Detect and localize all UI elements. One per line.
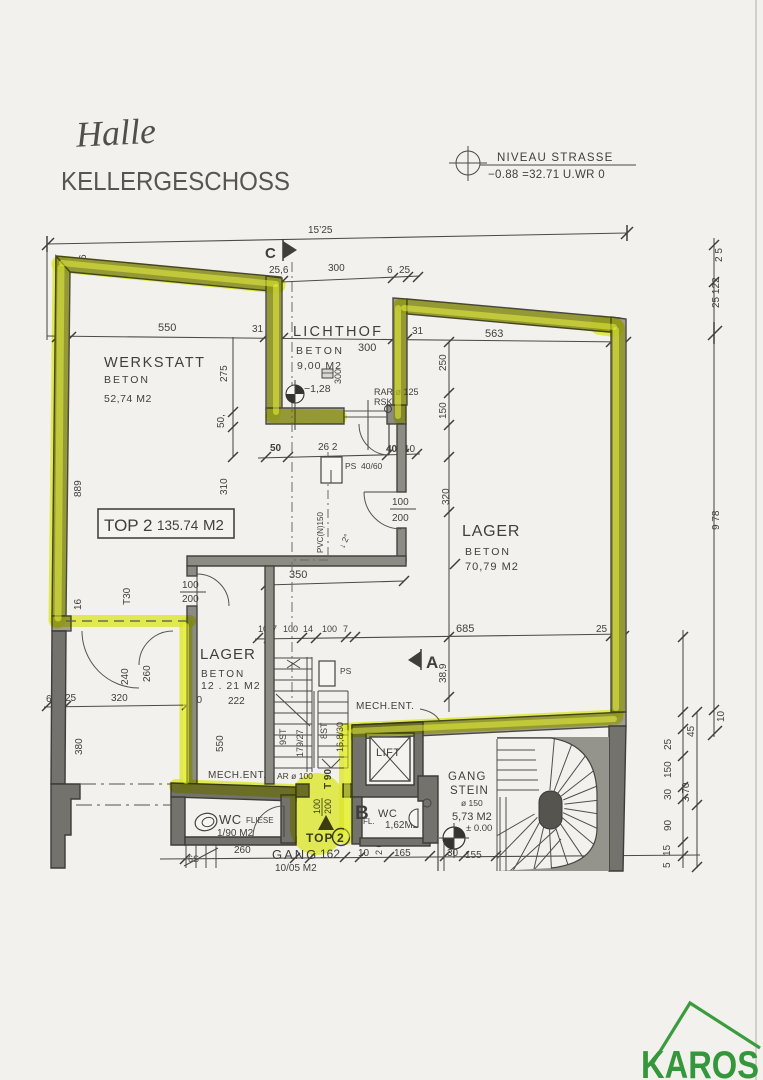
- svg-text:PVC(N)150: PVC(N)150: [316, 512, 325, 553]
- svg-text:52,74 M2: 52,74 M2: [104, 393, 152, 405]
- svg-text:KAROS: KAROS: [641, 1044, 759, 1080]
- svg-text:Halle: Halle: [74, 111, 157, 155]
- svg-text:31: 31: [412, 326, 424, 337]
- svg-text:90: 90: [663, 819, 674, 831]
- svg-text:3 70: 3 70: [681, 782, 692, 802]
- svg-text:275: 275: [219, 365, 230, 382]
- svg-text:25 122: 25 122: [711, 277, 722, 308]
- svg-text:FL.: FL.: [363, 817, 375, 826]
- svg-text:10: 10: [358, 848, 370, 859]
- svg-text:300: 300: [328, 263, 345, 274]
- svg-text:STEIN: STEIN: [450, 785, 489, 797]
- svg-text:LAGER: LAGER: [462, 523, 520, 540]
- svg-text:M2: M2: [203, 517, 224, 534]
- svg-text:12 . 21 M2: 12 . 21 M2: [201, 680, 261, 692]
- svg-text:7: 7: [343, 624, 348, 634]
- svg-text:10: 10: [716, 710, 727, 722]
- svg-text:889: 889: [73, 480, 84, 497]
- svg-text:70,79 M2: 70,79 M2: [465, 561, 519, 573]
- svg-text:15: 15: [662, 844, 673, 856]
- svg-text:550: 550: [215, 735, 226, 752]
- svg-text:± 0.00: ± 0.00: [466, 823, 492, 834]
- svg-text:25: 25: [399, 265, 411, 276]
- svg-text:320: 320: [441, 488, 452, 505]
- svg-text:310: 310: [219, 478, 230, 495]
- svg-text:BETON: BETON: [201, 669, 245, 680]
- svg-text:−1,28: −1,28: [304, 383, 331, 395]
- svg-text:25: 25: [596, 624, 608, 635]
- svg-text:TOP 2: TOP 2: [104, 516, 153, 535]
- svg-text:260: 260: [234, 845, 251, 856]
- svg-text:685: 685: [456, 623, 474, 635]
- svg-text:40: 40: [386, 444, 398, 455]
- svg-text:GANG: GANG: [448, 771, 487, 783]
- svg-text:−0.88 =32.71 U.WR 0: −0.88 =32.71 U.WR 0: [488, 169, 605, 181]
- svg-text:150: 150: [438, 402, 449, 419]
- svg-text:179/27: 179/27: [295, 729, 305, 757]
- svg-text:WERKSTATT: WERKSTATT: [104, 355, 204, 371]
- svg-text:135.74: 135.74: [157, 518, 199, 533]
- svg-text:MECH.ENT.: MECH.ENT.: [356, 701, 414, 712]
- svg-text:380: 380: [74, 738, 85, 755]
- svg-text:9ST: 9ST: [278, 728, 288, 745]
- svg-text:250: 250: [438, 354, 449, 371]
- svg-text:WC: WC: [219, 812, 242, 827]
- svg-text:50,: 50,: [216, 414, 227, 428]
- svg-text:14: 14: [303, 624, 313, 634]
- svg-text:155: 155: [465, 850, 482, 861]
- svg-text:BETON: BETON: [104, 374, 150, 386]
- svg-text:6S: 6S: [188, 854, 199, 864]
- svg-text:30: 30: [663, 788, 674, 800]
- svg-text:15’25: 15’25: [308, 225, 333, 236]
- svg-text:NIVEAU STRASSE: NIVEAU STRASSE: [497, 152, 614, 164]
- svg-text:1/90 M2: 1/90 M2: [217, 828, 254, 839]
- svg-text:LAGER: LAGER: [200, 646, 256, 663]
- svg-text:5,73 M2: 5,73 M2: [452, 811, 492, 823]
- svg-text:320: 320: [111, 693, 128, 704]
- svg-text:563: 563: [485, 328, 503, 340]
- svg-text:100: 100: [322, 624, 337, 634]
- svg-text:300: 300: [333, 369, 343, 384]
- svg-text:100: 100: [392, 497, 409, 508]
- svg-text:2 5: 2 5: [714, 248, 725, 262]
- svg-text:222: 222: [228, 696, 245, 707]
- svg-text:MECH.ENT.: MECH.ENT.: [208, 770, 266, 781]
- svg-text:10/05 M2: 10/05 M2: [275, 863, 317, 874]
- svg-text:200: 200: [392, 513, 409, 524]
- svg-text:40/60: 40/60: [361, 461, 383, 471]
- svg-text:ø 150: ø 150: [461, 798, 483, 808]
- svg-text:25: 25: [65, 693, 77, 704]
- svg-text:31: 31: [252, 324, 264, 335]
- svg-text:260: 260: [142, 665, 153, 682]
- svg-text:A: A: [426, 653, 438, 672]
- svg-text:BETON: BETON: [296, 345, 344, 357]
- svg-text:KELLERGESCHOSS: KELLERGESCHOSS: [61, 166, 290, 196]
- svg-text:8ST: 8ST: [319, 722, 329, 739]
- svg-text:300: 300: [358, 342, 376, 354]
- svg-text:LICHTHOF: LICHTHOF: [293, 324, 381, 340]
- svg-text:LIFT: LIFT: [376, 747, 401, 759]
- svg-text:38,9: 38,9: [438, 663, 449, 683]
- svg-text:5: 5: [662, 862, 673, 868]
- svg-text:45: 45: [686, 725, 697, 737]
- svg-text:550: 550: [158, 322, 176, 334]
- svg-text:240: 240: [120, 668, 131, 685]
- svg-text:25: 25: [663, 738, 674, 750]
- svg-text:100: 100: [283, 624, 298, 634]
- svg-text:165: 165: [394, 848, 411, 859]
- svg-text:16: 16: [73, 598, 84, 610]
- svg-text:25,6: 25,6: [269, 265, 289, 276]
- svg-text:PS: PS: [345, 461, 357, 471]
- svg-text:26 2: 26 2: [318, 442, 338, 453]
- svg-text:9 78: 9 78: [711, 510, 722, 530]
- svg-text:50: 50: [270, 443, 282, 454]
- svg-text:BETON: BETON: [465, 546, 511, 558]
- svg-text:6: 6: [387, 265, 393, 276]
- svg-text:WC: WC: [378, 808, 397, 820]
- svg-text:T30: T30: [122, 587, 133, 605]
- svg-text:PS: PS: [340, 666, 352, 676]
- svg-text:C: C: [265, 245, 276, 262]
- svg-text:150: 150: [663, 761, 674, 778]
- svg-text:30: 30: [447, 848, 459, 859]
